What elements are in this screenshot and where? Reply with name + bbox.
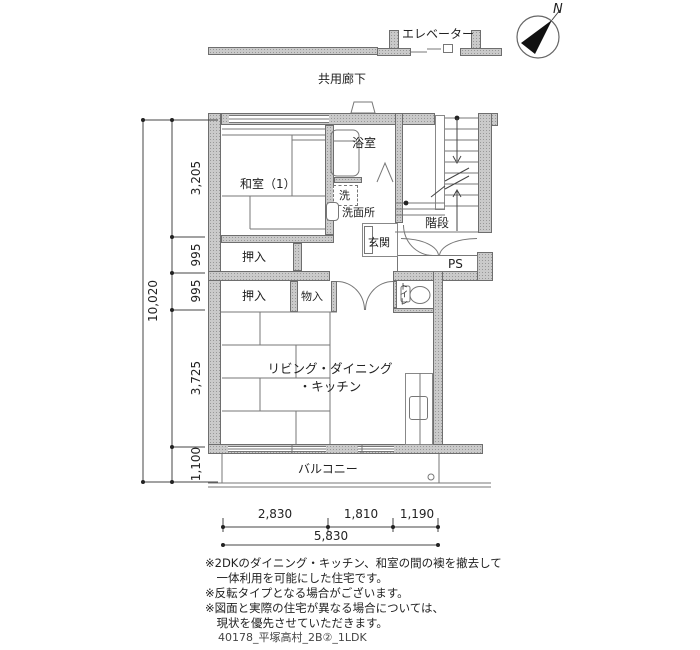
dim-left-seg3: 995 — [189, 269, 203, 313]
stair-treads — [445, 118, 478, 206]
floor-plan: エレベーター 共用廊下 N 和室（1） 浴室 洗 洗面所 玄関 階段 PS 押入… — [0, 0, 700, 650]
dim-bottom-total: 5,830 — [306, 529, 356, 543]
washbasin — [326, 202, 339, 221]
ps-corner-wall — [477, 252, 493, 281]
note-line-5: 現状を優先させていただきます。 — [205, 616, 502, 631]
ldk-right-wall — [433, 271, 443, 454]
corridor-wall — [208, 47, 378, 55]
stair-arrow-lower — [453, 190, 461, 231]
elevator-pillar-left-base — [377, 48, 411, 56]
washer-label: 洗 — [339, 189, 350, 202]
washitsu-window — [229, 115, 329, 123]
balcony-label: バルコニー — [298, 462, 358, 476]
compass-icon — [517, 10, 560, 58]
bath-door-mark — [377, 163, 393, 182]
washitsu1-label: 和室（1） — [240, 177, 296, 191]
balcony-drain — [428, 474, 434, 480]
compass-circle — [517, 16, 559, 58]
dim-left-total: 10,020 — [146, 275, 160, 327]
plan-id-label: 40178_平塚高村_2B②_1LDK — [218, 631, 367, 644]
washitsu-bottom-wall — [221, 235, 334, 243]
note-line-4: ※図面と実際の住宅が異なる場合については、 — [205, 601, 502, 616]
bath-bottom-wall — [334, 177, 362, 183]
washitsu-sill-lines — [222, 129, 325, 135]
stair-stringer — [435, 115, 445, 210]
balcony-rail-lines — [208, 483, 491, 487]
dim-bottom-seg2: 1,810 — [336, 507, 386, 521]
outer-wall-left — [208, 113, 221, 454]
note-line-1: ※2DKのダイニング・キッチン、和室の間の襖を撤去して — [205, 556, 502, 571]
hall-door-arc-right — [365, 281, 393, 310]
pipe-space-label: PS — [448, 257, 463, 271]
divider-wall-left — [208, 271, 330, 281]
ps-door-arc-right — [439, 238, 477, 256]
washroom-label: 洗面所 — [342, 206, 375, 219]
ldk-label-line1: リビング・ダイニング — [258, 358, 402, 377]
note-line-3: ※反転タイプとなる場合がございます。 — [205, 586, 502, 601]
stairs-label: 階段 — [425, 216, 449, 230]
dim-left-seg1: 3,205 — [189, 156, 203, 200]
dim-left-seg4: 3,725 — [189, 356, 203, 400]
kitchen-sink — [409, 396, 428, 420]
closet-storage-divider-wall — [290, 281, 298, 312]
toilet-bowl — [410, 287, 430, 304]
dim-bottom-seg3: 1,190 — [394, 507, 440, 521]
storage-label: 物入 — [301, 290, 323, 303]
ps-door-arc-left — [401, 238, 439, 256]
ldk-label-line2: ・キッチン — [258, 376, 402, 395]
stair-landing-dot — [404, 201, 409, 206]
elevator-car — [443, 44, 453, 53]
note-line-2: 一体利用を可能にした住宅です。 — [205, 571, 502, 586]
closet-upper-right-wall — [293, 243, 302, 271]
stairwell-wall-right — [478, 113, 492, 233]
stair-arrow-upper — [453, 118, 461, 163]
pipe-space-box — [397, 255, 478, 272]
bath-label: 浴室 — [352, 136, 376, 150]
dim-bottom-seg1: 2,830 — [245, 507, 305, 521]
closet-lower-label: 押入 — [242, 289, 266, 303]
notes-block: ※2DKのダイニング・キッチン、和室の間の襖を撤去して 一体利用を可能にした住宅… — [205, 556, 502, 631]
elevator-pillar-right-base — [460, 48, 502, 56]
ldk-window-right — [358, 446, 394, 452]
compass-n-label: N — [553, 2, 563, 17]
entrance-label: 玄関 — [368, 236, 390, 249]
bath-vent — [351, 102, 375, 113]
bath-right-wall — [395, 113, 403, 223]
elevator-door-line — [411, 49, 441, 52]
elevator-label: エレベーター — [398, 27, 478, 41]
hall-door-arc-left — [337, 281, 365, 310]
stair-arrow-dot — [455, 116, 460, 121]
compass-needle — [521, 20, 552, 54]
corridor-label: 共用廊下 — [318, 72, 366, 86]
dim-left-seg5: 1,100 — [189, 442, 203, 486]
toilet-label: トイレ — [397, 282, 409, 305]
linework-overlay — [0, 0, 700, 650]
closet-upper-label: 押入 — [242, 250, 266, 264]
ldk-window-left — [228, 446, 326, 452]
